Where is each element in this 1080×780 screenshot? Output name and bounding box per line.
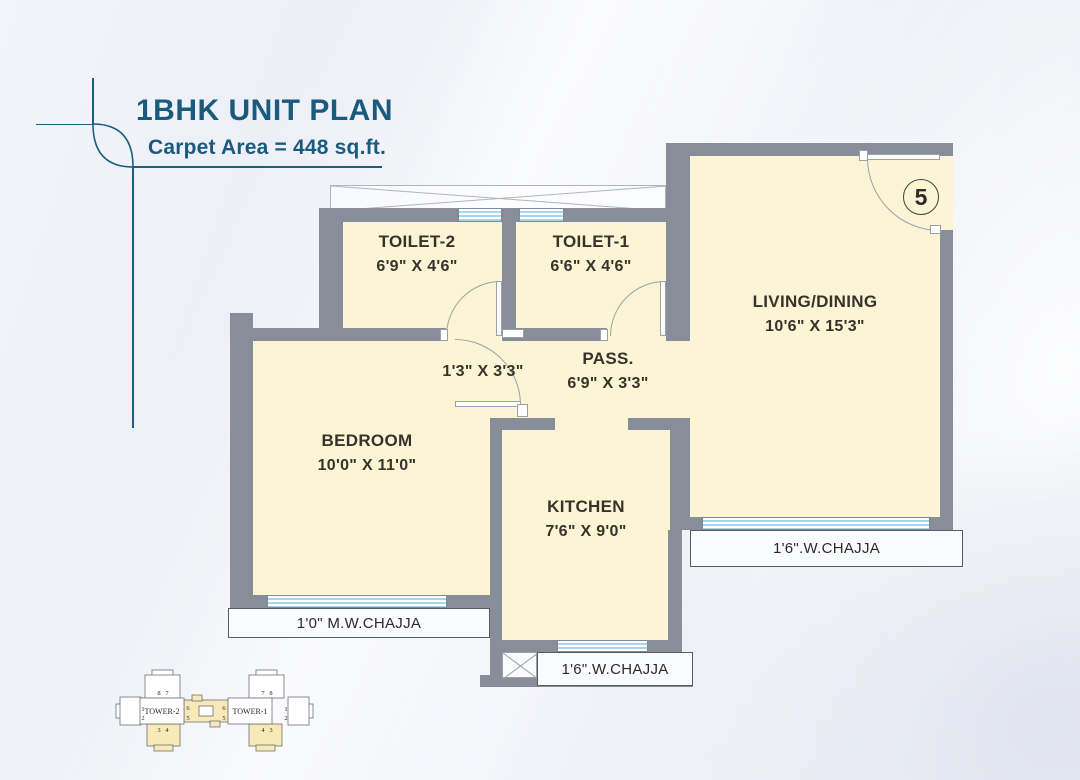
toilet2-window: [458, 208, 502, 222]
chajja-living-label: 1'6".W.CHAJJA: [773, 540, 880, 557]
living-name: LIVING/DINING: [715, 292, 915, 312]
entrance-jamb-bottom: [930, 225, 941, 234]
toilet1-window: [519, 208, 564, 222]
bedroom-label: BEDROOM 10'0" X 11'0": [267, 431, 467, 475]
toilet2-door-leaf: [496, 281, 502, 336]
duct-box-top: [330, 185, 666, 210]
wall-kitchen-top-left: [490, 418, 555, 430]
wall-bedroom-left: [230, 313, 253, 608]
entrance-opening: [940, 156, 953, 235]
kitchen-label: KITCHEN 7'6" X 9'0": [496, 497, 676, 541]
toilet2-door-jamb: [440, 329, 448, 341]
wall-living-right: [940, 230, 953, 530]
kitchen-window: [557, 640, 648, 652]
t1-unit-number: 8: [269, 690, 272, 697]
living-window: [702, 517, 930, 530]
chajja-kitchen-label: 1'6".W.CHAJJA: [561, 661, 668, 678]
toilet1-door-jamb: [600, 329, 608, 341]
bedroom-dims: 10'0" X 11'0": [267, 457, 467, 475]
tower1-label: TOWER-1: [233, 707, 268, 716]
decor-horizontal-line: [36, 124, 94, 126]
wall-living-bottom-right: [930, 517, 953, 530]
living-label: LIVING/DINING 10'6" X 15'3": [715, 292, 915, 336]
wall-kitchen-bottom-right: [648, 640, 668, 652]
chajja-bedroom-label: 1'0" M.W.CHAJJA: [297, 615, 421, 632]
unit-number-badge: 5: [903, 179, 939, 215]
wall-toilet1-bottom: [516, 328, 607, 341]
wall-kitchen-bottom-left: [502, 640, 557, 652]
bedroom-door-jamb: [517, 404, 528, 417]
bedroom-name: BEDROOM: [267, 431, 467, 451]
page-title: 1BHK UNIT PLAN: [136, 94, 393, 128]
toilet1-door-leaf: [660, 281, 666, 336]
tower2-label: TOWER-2: [145, 707, 180, 716]
subtitle-underline: [133, 166, 382, 168]
floor-plan-page: 1BHK UNIT PLAN Carpet Area = 448 sq.ft.: [0, 0, 1080, 780]
entrance-jamb-left: [859, 150, 868, 161]
toilet1-name: TOILET-1: [511, 232, 671, 252]
chajja-bedroom: 1'0" M.W.CHAJJA: [228, 608, 490, 638]
t2-unit-number: 2: [141, 715, 144, 722]
decor-vertical-line-long: [132, 166, 134, 428]
decor-petal-curve: [92, 123, 136, 168]
chajja-kitchen: 1'6".W.CHAJJA: [537, 652, 693, 686]
duct-box-kitchen: [502, 652, 537, 678]
wall-bedroom-top: [230, 328, 446, 341]
t1-unit-number: 5: [222, 715, 225, 722]
bedroom-door-leaf: [455, 401, 521, 407]
toilet2-label: TOILET-2 6'9" X 4'6": [337, 232, 497, 276]
t1-unit-number: 1: [284, 706, 287, 713]
entrance-door-leaf: [867, 154, 940, 160]
living-dims: 10'6" X 15'3": [715, 318, 915, 336]
wall-living-bottom-left: [678, 517, 702, 530]
toilet1-label: TOILET-1 6'6" X 4'6": [511, 232, 671, 276]
t2-unit-number: 5: [186, 715, 189, 722]
toilet2-name: TOILET-2: [337, 232, 497, 252]
toilet2-door-jamb-right: [502, 329, 524, 338]
wall-kitchen-left: [490, 418, 502, 687]
bedroom-window: [267, 595, 447, 608]
t1-unit-number: 3: [269, 727, 272, 734]
tower-key-plan: TOWER-2 TOWER-1 8 7 1 2 3 4 6 5 7 8 1 2 …: [112, 660, 317, 768]
toilet2-dims: 6'9" X 4'6": [337, 258, 497, 276]
unit-number: 5: [915, 184, 928, 211]
kitchen-name: KITCHEN: [496, 497, 676, 517]
decor-vertical-line: [92, 78, 94, 125]
passage-dims: 1'3" X 3'3": [408, 363, 558, 381]
t2-unit-number: 3: [157, 727, 160, 734]
toilet1-dims: 6'6" X 4'6": [511, 258, 671, 276]
t2-unit-number: 1: [141, 706, 144, 713]
t2-unit-number: 8: [157, 690, 160, 697]
carpet-area-subtitle: Carpet Area = 448 sq.ft.: [148, 136, 386, 160]
chajja-living: 1'6".W.CHAJJA: [690, 530, 963, 567]
t1-unit-number: 2: [284, 715, 287, 722]
duct-cross-lines: [503, 653, 538, 679]
kitchen-dims: 7'6" X 9'0": [496, 523, 676, 541]
